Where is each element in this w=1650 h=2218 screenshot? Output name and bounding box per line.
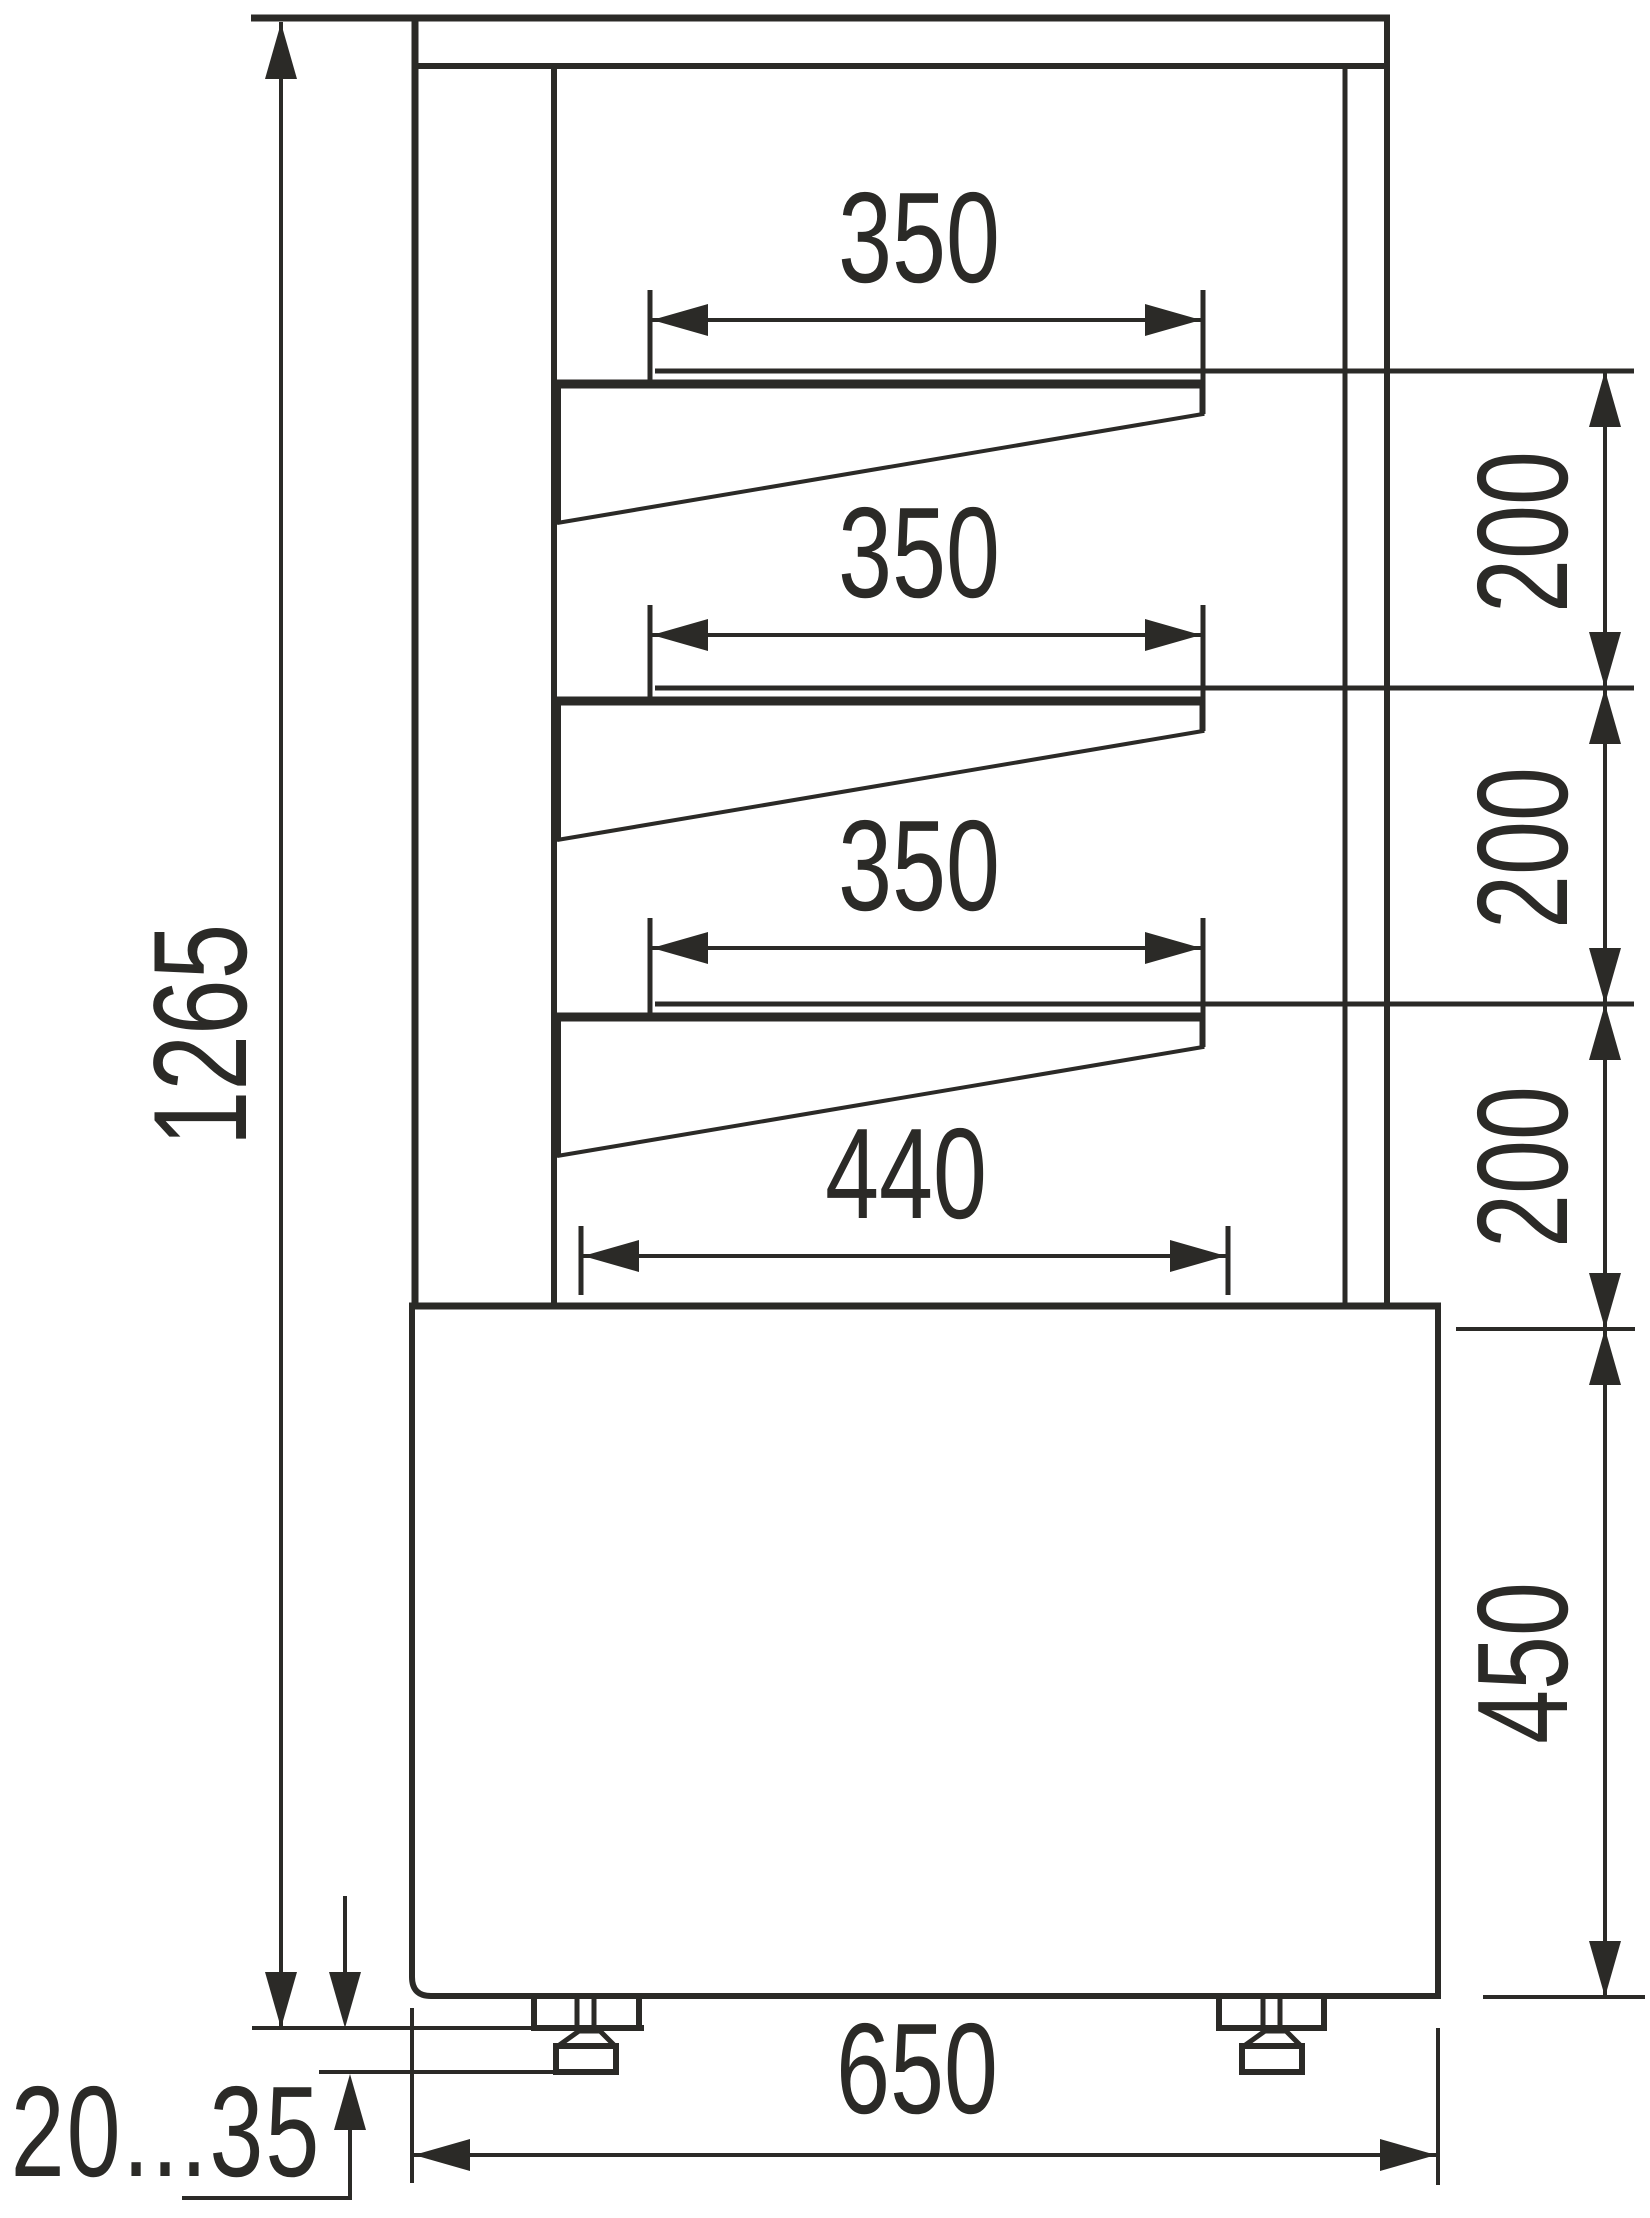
svg-text:200: 200 bbox=[1452, 1086, 1596, 1248]
svg-text:450: 450 bbox=[1452, 1582, 1596, 1744]
svg-text:20...35: 20...35 bbox=[11, 2061, 322, 2205]
svg-text:350: 350 bbox=[838, 795, 1000, 939]
svg-text:650: 650 bbox=[836, 1998, 998, 2142]
svg-text:350: 350 bbox=[838, 482, 1000, 626]
svg-text:350: 350 bbox=[838, 167, 1000, 311]
svg-text:1265: 1265 bbox=[125, 924, 274, 1146]
svg-text:200: 200 bbox=[1452, 451, 1596, 613]
svg-text:200: 200 bbox=[1452, 767, 1596, 929]
svg-text:440: 440 bbox=[825, 1103, 987, 1247]
